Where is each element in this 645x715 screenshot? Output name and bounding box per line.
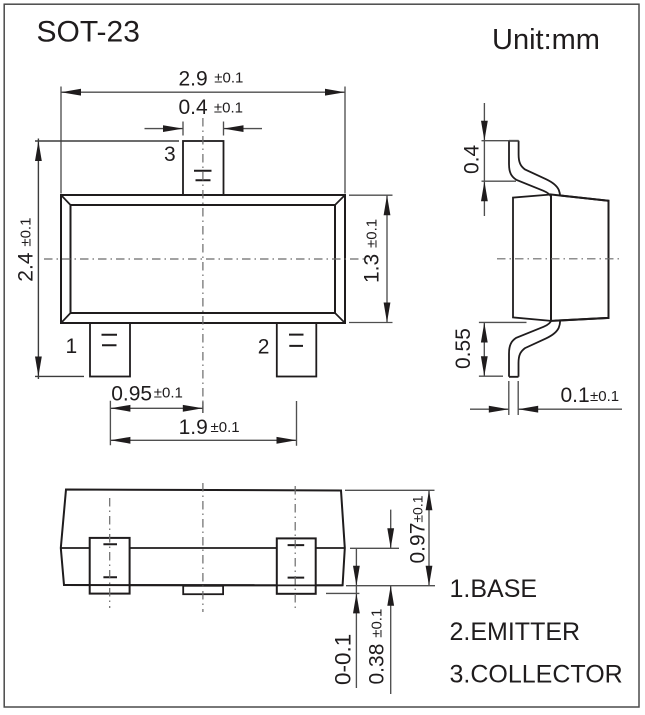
svg-text:0.1: 0.1 [561,384,590,407]
svg-text:0.4: 0.4 [179,96,209,119]
svg-text:0.95: 0.95 [111,382,152,405]
svg-text:3.COLLECTOR: 3.COLLECTOR [450,661,623,689]
svg-text:±0.1: ±0.1 [590,388,619,405]
svg-text:0-0.1: 0-0.1 [331,634,356,685]
svg-text:2.9: 2.9 [179,67,208,90]
svg-text:±0.1: ±0.1 [211,419,240,436]
svg-text:0.38 ±0.1: 0.38 ±0.1 [366,609,389,685]
svg-text:2.EMITTER: 2.EMITTER [450,618,581,646]
svg-text:Unit:mm: Unit:mm [492,24,600,56]
svg-text:3: 3 [164,143,176,166]
svg-text:0.55: 0.55 [452,328,475,369]
svg-text:1.3 ±0.1: 1.3 ±0.1 [361,219,384,283]
svg-text:±0.1: ±0.1 [154,384,183,401]
svg-text:2.4 ±0.1: 2.4 ±0.1 [15,218,38,282]
svg-text:±0.1: ±0.1 [214,70,243,87]
svg-text:±0.1: ±0.1 [214,99,243,116]
svg-text:1.BASE: 1.BASE [450,575,538,603]
svg-text:0.4: 0.4 [460,144,483,174]
svg-text:SOT-23: SOT-23 [37,16,140,49]
svg-text:2: 2 [258,336,270,359]
svg-text:1.9: 1.9 [179,416,208,439]
svg-text:1: 1 [66,335,78,358]
